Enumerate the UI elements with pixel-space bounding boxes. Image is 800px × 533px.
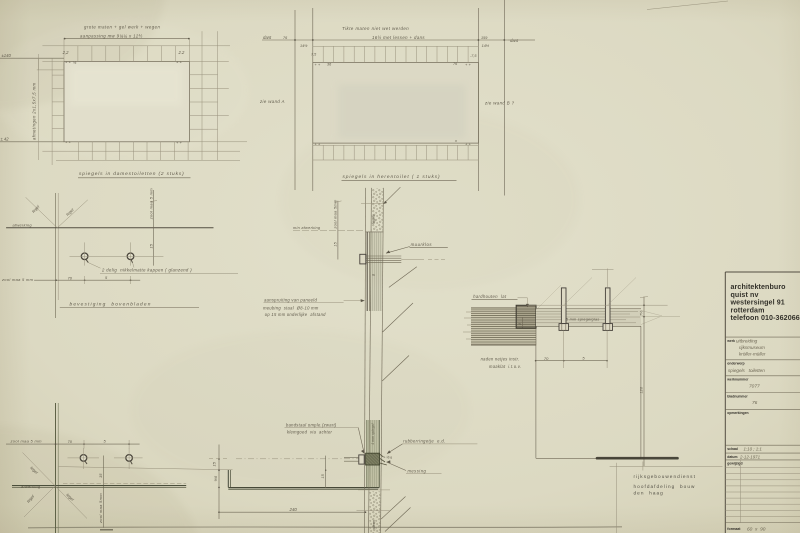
svg-text:min afwerking: min afwerking [293, 226, 321, 230]
svg-text:afmetingen 2x1,5x7,5 mm: afmetingen 2x1,5x7,5 mm [32, 83, 37, 140]
svg-text:70: 70 [68, 439, 73, 444]
svg-text:8: 8 [372, 274, 376, 276]
svg-text:+ +: + + [176, 59, 182, 64]
svg-text:afwerking: afwerking [13, 223, 33, 228]
svg-text:2,2: 2,2 [62, 50, 69, 55]
svg-text:zool maa 5 mm: zool maa 5 mm [1, 277, 34, 282]
svg-text:7½: 7½ [639, 310, 644, 316]
svg-text:zool maa 5mm: zool maa 5mm [333, 199, 338, 230]
svg-text:15: 15 [212, 461, 217, 466]
svg-text:werknummer: werknummer [726, 378, 749, 382]
svg-text:rijksgebouwendienst: rijksgebouwendienst [634, 474, 696, 479]
svg-text:bandstaal omple.(zwart): bandstaal omple.(zwart) [286, 422, 337, 427]
svg-text:7077: 7077 [749, 383, 760, 389]
svg-text:2.2: 2.2 [178, 50, 185, 55]
svg-text:grote maten + gel werk + wegen: grote maten + gel werk + wegen [84, 24, 160, 29]
svg-text:zie wand B ?: zie wand B ? [484, 101, 515, 106]
svg-text:op 15 mm onderlijke afstand: op 15 mm onderlijke afstand [265, 312, 326, 317]
svg-text:zool maa 5 mm: zool maa 5 mm [148, 188, 153, 221]
svg-text:zool maa 5 mm: zool maa 5 mm [10, 439, 43, 444]
svg-text:rijksmuseum: rijksmuseum [739, 345, 765, 350]
svg-text:datum: datum [727, 455, 737, 459]
svg-text:meubing staal Ø8-10 mm: meubing staal Ø8-10 mm [263, 305, 319, 310]
svg-text:bladnummer: bladnummer [727, 394, 748, 398]
svg-text:+ +: + + [314, 142, 320, 147]
svg-text:240: 240 [289, 507, 298, 512]
svg-text:70: 70 [544, 356, 549, 361]
svg-text:spiegels in damestoiletten (2: spiegels in damestoiletten (2 stuks) [79, 171, 185, 177]
svg-text:+ + ¼: + + ¼ [65, 60, 77, 65]
svg-text:bevestiging bovenbladen: bevestiging bovenbladen [70, 301, 152, 307]
svg-text:den haag: den haag [634, 491, 664, 496]
svg-text:15: 15 [149, 243, 154, 248]
svg-text:14½: 14½ [300, 44, 308, 48]
svg-text:telefoon 010-362066: telefoon 010-362066 [731, 314, 800, 322]
svg-text:dant: dant [263, 35, 272, 40]
svg-text:aanpassing mw 9¾¼ x 12½: aanpassing mw 9¾¼ x 12½ [80, 34, 143, 39]
svg-text:werk: werk [726, 339, 735, 343]
svg-text:schaal: schaal [727, 447, 738, 451]
svg-text:8: 8 [518, 323, 522, 325]
svg-text:7,5: 7,5 [311, 52, 317, 56]
svg-text:spiegels in herentoilet ( 1 st: spiegels in herentoilet ( 1 stuks) [343, 174, 441, 180]
svg-text:+ ½¼: + ½¼ [384, 455, 393, 459]
svg-text:+ +: + + [314, 62, 320, 67]
svg-text:+ +: + + [465, 62, 471, 67]
svg-text:2 delig nikkelmatte kappen (: 2 delig nikkelmatte kappen ( glanzend ) [101, 268, 192, 273]
svg-text:±140: ±140 [2, 53, 12, 58]
svg-text:16½ met lessen + dans: 16½ met lessen + dans [372, 35, 425, 40]
svg-text:kröller-müller: kröller-müller [739, 351, 766, 356]
svg-text:5 mm spiegelglas: 5 mm spiegelglas [566, 317, 600, 321]
svg-text:spiegels toiletten: spiegels toiletten [728, 368, 765, 373]
svg-text:dant: dant [510, 38, 519, 43]
svg-text:159: 159 [481, 36, 488, 40]
svg-text:hardhouten lat: hardhouten lat [473, 294, 507, 299]
svg-text:+ +: + + [65, 139, 71, 144]
svg-text:2-12-1971: 2-12-1971 [739, 455, 761, 460]
svg-text:rubberringetje e.d.: rubberringetje e.d. [403, 439, 445, 444]
svg-text:formaat: formaat [727, 527, 741, 531]
svg-text:15: 15 [98, 473, 103, 478]
svg-text:aanspruiting van paneeld: aanspruiting van paneeld [264, 297, 317, 302]
svg-text:onderwerp: onderwerp [727, 362, 744, 366]
svg-text:60 x 90: 60 x 90 [747, 526, 766, 532]
svg-text:naden netjes instr.: naden netjes instr. [481, 357, 520, 362]
svg-text:maaklat i.t.o.v.: maaklat i.t.o.v. [489, 364, 521, 369]
svg-text:Tikte maten niet wet werden: Tikte maten niet wet werden [342, 26, 409, 31]
svg-text:zie wand A: zie wand A [259, 99, 285, 104]
svg-text:1:10 ; 1:1: 1:10 ; 1:1 [744, 447, 763, 452]
svg-text:70: 70 [68, 276, 73, 281]
svg-text:-7,5: -7,5 [470, 54, 477, 58]
svg-text:steen: steen [372, 520, 376, 529]
svg-text:afwerking: afwerking [21, 484, 41, 489]
svg-text:14½: 14½ [482, 44, 490, 48]
svg-text:tegels: tegels [372, 214, 376, 224]
svg-text:zool maa 5mm: zool maa 5mm [98, 493, 103, 524]
svg-text:76: 76 [752, 400, 758, 406]
svg-text:± 42: ± 42 [1, 137, 10, 142]
svg-text:hoofdafdeling bouw: hoofdafdeling bouw [634, 484, 696, 489]
svg-text:klemgoed via achter: klemgoed via achter [287, 429, 333, 434]
svg-text:½6: ½6 [213, 475, 218, 481]
svg-text:messing: messing [408, 468, 427, 473]
svg-text:muurklos: muurklos [411, 242, 433, 247]
svg-text:+ +: + + [176, 140, 182, 145]
svg-text:opmerkingen: opmerkingen [727, 411, 748, 415]
svg-text:uitbreiding: uitbreiding [736, 339, 758, 344]
